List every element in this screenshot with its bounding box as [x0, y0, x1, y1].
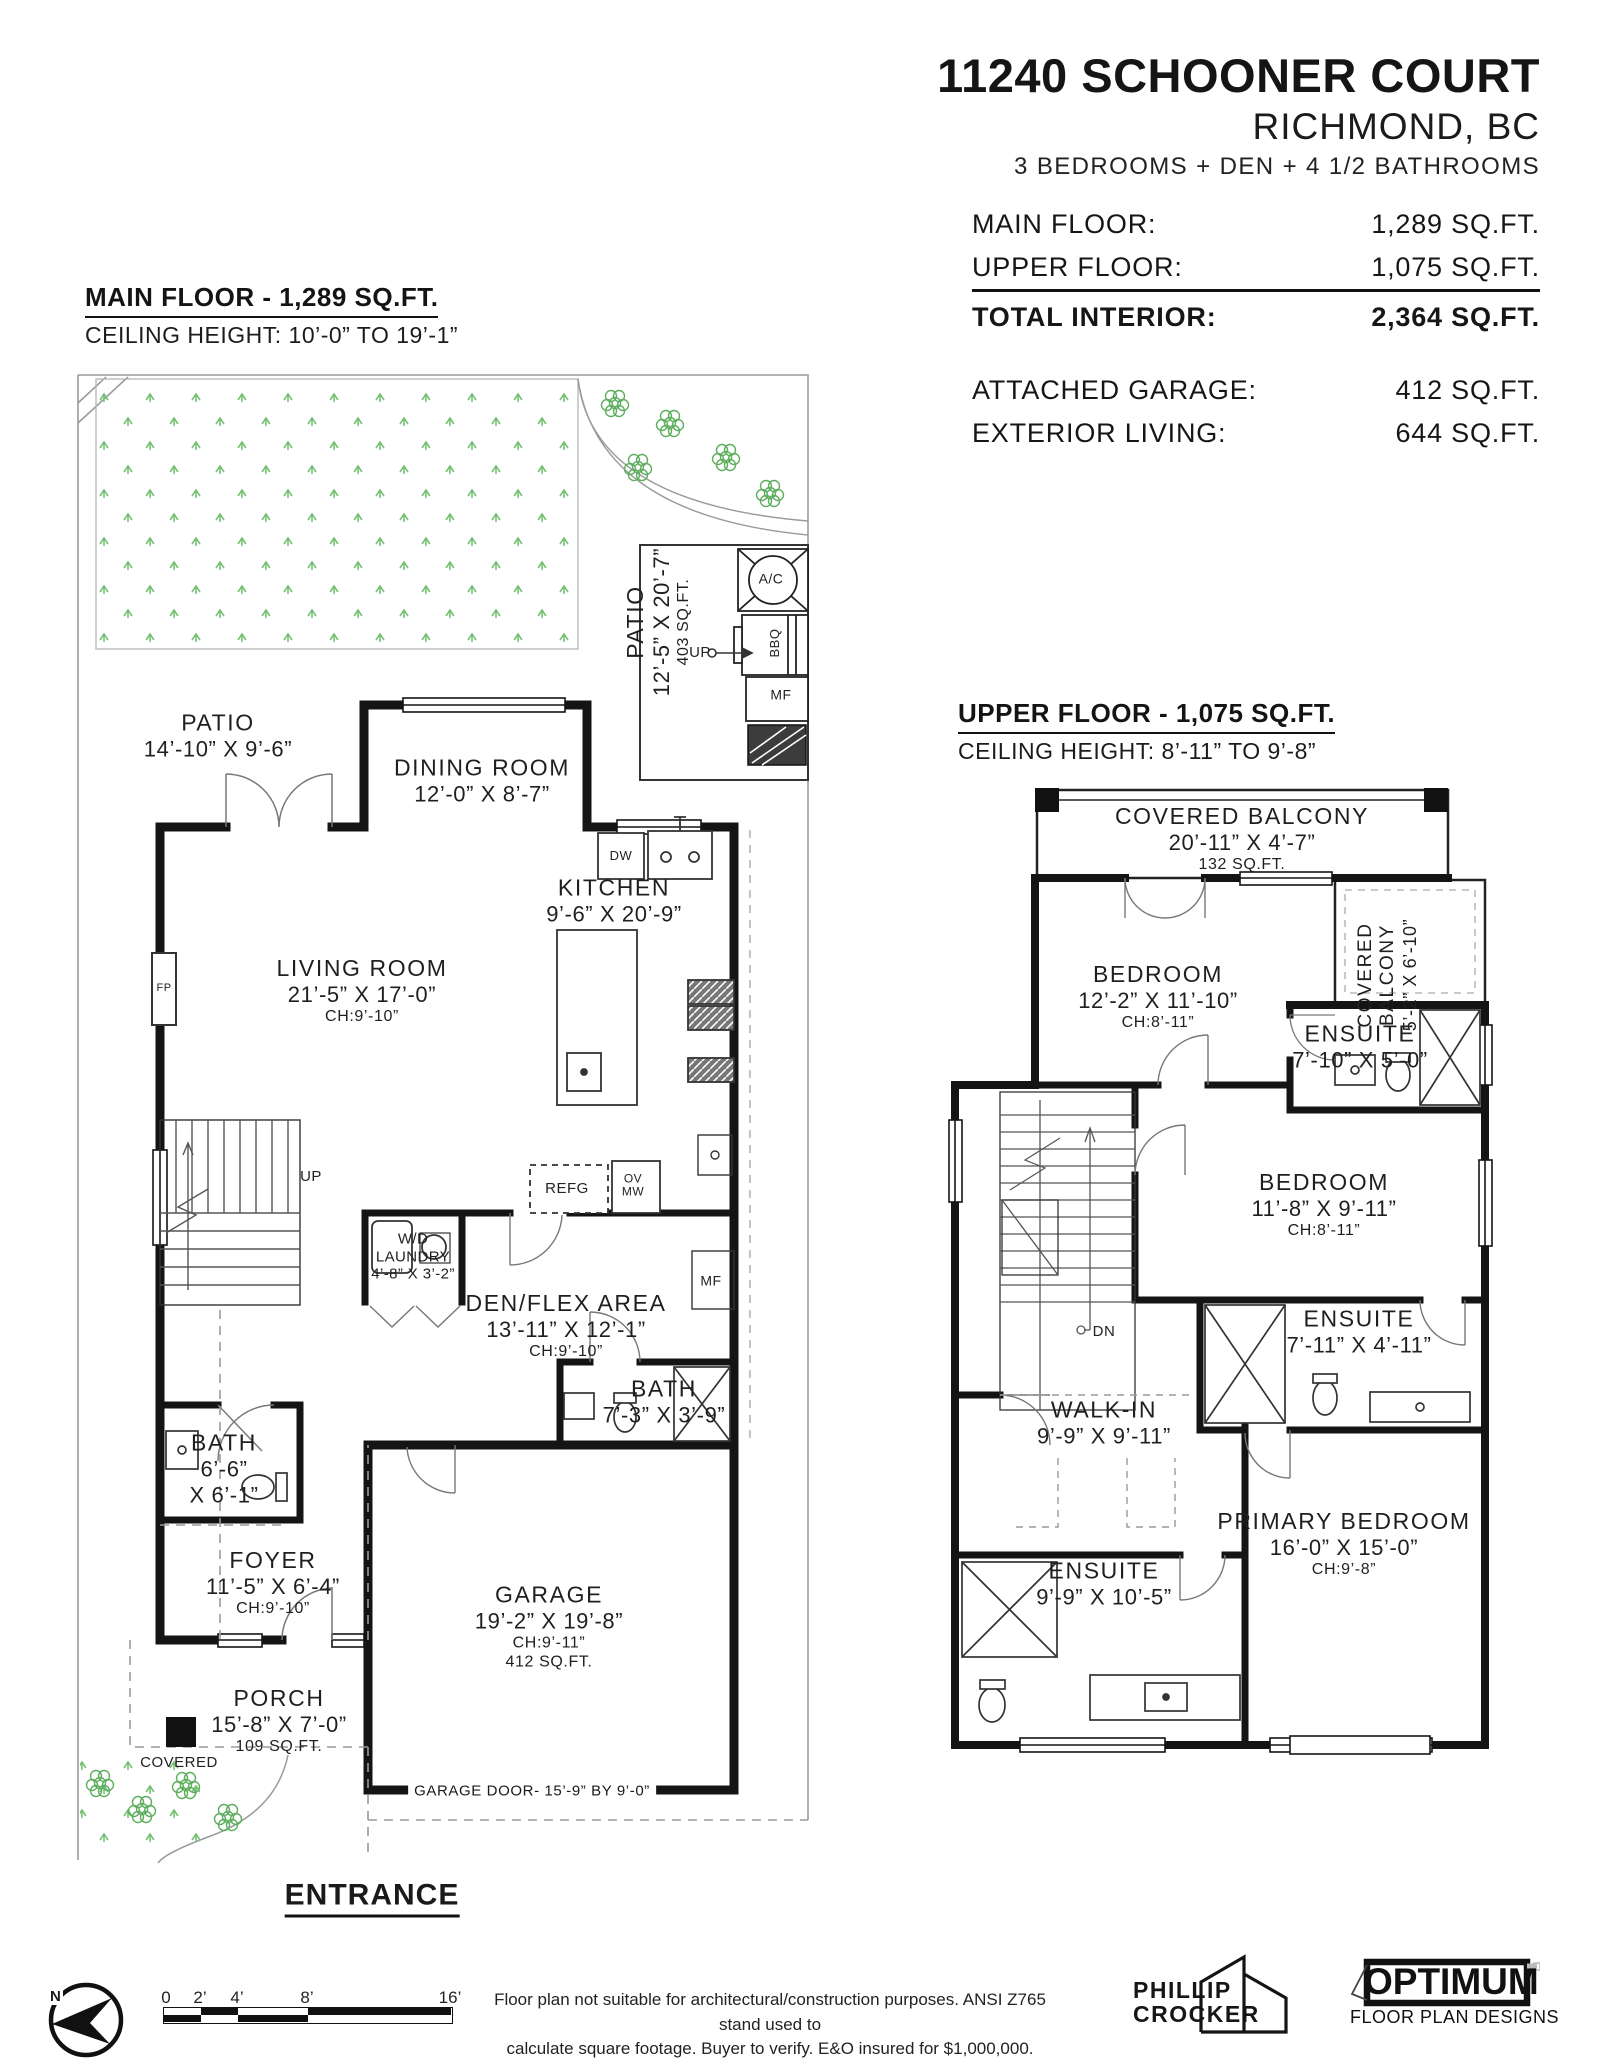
- area-value: 1,075 SQ.FT.: [1371, 252, 1540, 283]
- main-floor-title: MAIN FLOOR - 1,289 SQ.FT.: [85, 282, 438, 318]
- up-stairs-label: UP: [300, 1169, 322, 1185]
- disclaimer-text: Floor plan not suitable for architectura…: [480, 1988, 1060, 2062]
- room-label-bath-den: BATH 7’-3” X 3’-9”: [603, 1375, 726, 1428]
- scale-tick: 16’: [439, 1988, 462, 2008]
- area-label: TOTAL INTERIOR:: [972, 302, 1217, 333]
- refg-label: REFG: [545, 1181, 589, 1197]
- porch-post: [166, 1717, 196, 1747]
- room-label-porch: PORCH 15’-8” X 7’-0” 109 SQ.FT.: [211, 1685, 347, 1757]
- scale-bar: 0 2’ 4’ 8’ 16’: [163, 1988, 453, 2028]
- room-label-primary: PRIMARY BEDROOM 16’-0” X 15’-0” CH:9’-8”: [1217, 1508, 1470, 1580]
- entrance-label: ENTRANCE: [285, 1879, 460, 1918]
- scale-tick: 8’: [300, 1988, 313, 2008]
- main-floor-plan-drawing: [70, 365, 815, 1875]
- wall-oven: [688, 980, 734, 1004]
- room-label-patio-right: PATIO 12’-5” X 20’-7” 403 SQ.FT.: [622, 548, 694, 696]
- balcony-doors: [1125, 878, 1205, 918]
- dn-label: DN: [1093, 1324, 1116, 1340]
- garage-door-label: GARAGE DOOR- 15’-9” BY 9’-0”: [408, 1783, 656, 1800]
- room-label-living: LIVING ROOM 21’-5” X 17’-0” CH:9’-10”: [277, 955, 448, 1027]
- mf-den-label: MF: [700, 1274, 721, 1289]
- room-label-laundry: W/D LAUNDRY 4’-8” X 3’-2”: [371, 1230, 455, 1283]
- staircase: [160, 1120, 300, 1305]
- room-label-balcony-top: COVERED BALCONY 20’-11” X 4’-7” 132 SQ.F…: [1115, 803, 1369, 875]
- area-label: MAIN FLOOR:: [972, 209, 1156, 240]
- room-label-ensuite2: ENSUITE 7’-11” X 4’-11”: [1286, 1305, 1431, 1358]
- kitchen-island: [557, 930, 637, 1105]
- bay-window: [1290, 1736, 1430, 1754]
- garden-bed: [96, 379, 578, 649]
- french-doors: [226, 774, 332, 827]
- toilet: [1313, 1381, 1337, 1415]
- area-label: UPPER FLOOR:: [972, 252, 1183, 283]
- room-label-ensuite3: ENSUITE 9’-9” X 10’-5”: [1036, 1557, 1172, 1610]
- optimum-subtitle: FLOOR PLAN DESIGNS: [1350, 2007, 1540, 2028]
- area-value: 2,364 SQ.FT.: [1371, 302, 1540, 333]
- area-value: 1,289 SQ.FT.: [1371, 209, 1540, 240]
- dishwasher-label: DW: [610, 849, 633, 863]
- chimney-icon: [748, 725, 806, 765]
- room-label-dining: DINING ROOM 12’-0” X 8’-7”: [394, 754, 570, 807]
- scale-tick: 4’: [230, 1988, 243, 2008]
- table-row: EXTERIOR LIVING: 644 SQ.FT.: [972, 412, 1540, 455]
- north-letter: N: [48, 1988, 63, 2005]
- oven-mw-label: OV MW: [622, 1172, 644, 1197]
- spacer: [972, 339, 1540, 369]
- room-label-bedroom2: BEDROOM 11’-8” X 9’-11” CH:8’-11”: [1251, 1169, 1396, 1241]
- shrubs-icon: [602, 391, 784, 507]
- mf-label: MF: [770, 688, 791, 703]
- main-floor-ceiling: CEILING HEIGHT: 10’-0” TO 19’-1”: [85, 322, 458, 349]
- page-title: 11240 SCHOONER COURT: [937, 48, 1540, 103]
- phillip-crocker-logo: [1198, 1954, 1290, 2034]
- sink: [564, 1393, 594, 1419]
- floor-plan-sheet: 11240 SCHOONER COURT RICHMOND, BC 3 BEDR…: [0, 0, 1600, 2071]
- vanity: [1370, 1392, 1470, 1422]
- kitchen-sink: [648, 831, 712, 879]
- area-label: EXTERIOR LIVING:: [972, 418, 1226, 449]
- table-row: TOTAL INTERIOR: 2,364 SQ.FT.: [972, 292, 1540, 339]
- room-label-balcony-side: COVERED BALCONY 5’-2” X 6’-10”: [1355, 919, 1421, 1031]
- fireplace-label: FP: [156, 983, 171, 995]
- room-label-bedroom1: BEDROOM 12’-2” X 11’-10” CH:8’-11”: [1078, 961, 1238, 1033]
- upper-floor-title: UPPER FLOOR - 1,075 SQ.FT.: [958, 698, 1335, 734]
- optimum-logo: OPTIMUM FLOOR PLAN DESIGNS: [1350, 1958, 1540, 2030]
- room-label-foyer: FOYER 11’-5” X 6’-4” CH:9’-10”: [206, 1547, 340, 1619]
- room-label-bath-main: BATH 6’-6” X 6’-1”: [190, 1429, 259, 1508]
- upper-floor-ceiling: CEILING HEIGHT: 8’-11” TO 9’-8”: [958, 738, 1335, 765]
- area-summary-table: MAIN FLOOR: 1,289 SQ.FT. UPPER FLOOR: 1,…: [972, 203, 1540, 455]
- ac-label: A/C: [759, 572, 784, 587]
- up-arrow-icon: [708, 648, 752, 658]
- garage-entry-door: [407, 1445, 455, 1493]
- area-label: ATTACHED GARAGE:: [972, 375, 1257, 406]
- scale-tick: 0: [161, 1988, 170, 2008]
- table-row: UPPER FLOOR: 1,075 SQ.FT.: [972, 246, 1540, 292]
- optimum-wordmark: OPTIMUM: [1364, 1961, 1532, 2003]
- up-label: UP: [689, 645, 711, 661]
- upper-floor-header: UPPER FLOOR - 1,075 SQ.FT. CEILING HEIGH…: [958, 698, 1335, 765]
- room-label-ensuite1: ENSUITE 7’-10” X 5’-0”: [1292, 1020, 1428, 1073]
- room-label-den: DEN/FLEX AREA 13’-11” X 12’-1” CH:9’-10”: [465, 1290, 666, 1362]
- city-subtitle: RICHMOND, BC: [1253, 106, 1540, 148]
- upper-floor-plan-drawing: [940, 770, 1510, 1760]
- toilet: [979, 1688, 1005, 1722]
- area-value: 644 SQ.FT.: [1395, 418, 1540, 449]
- table-row: MAIN FLOOR: 1,289 SQ.FT.: [972, 203, 1540, 246]
- area-value: 412 SQ.FT.: [1395, 375, 1540, 406]
- room-label-garage: GARAGE 19’-2” X 19’-8” CH:9’-11” 412 SQ.…: [475, 1582, 623, 1673]
- room-label-patio: PATIO 14’-10” X 9’-6”: [144, 709, 292, 762]
- room-label-walkin: WALK-IN 9’-9” X 9’-11”: [1037, 1396, 1171, 1449]
- front-garden: [80, 1755, 288, 1863]
- upper-staircase: [1000, 1092, 1135, 1410]
- covered-label: COVERED: [140, 1755, 218, 1771]
- scale-bar-segments: [163, 2007, 453, 2024]
- bbq-label: BBQ: [768, 629, 782, 658]
- table-row: ATTACHED GARAGE: 412 SQ.FT.: [972, 369, 1540, 412]
- room-label-kitchen: KITCHEN 9’-6” X 20’-9”: [546, 874, 682, 927]
- bed-bath-summary: 3 BEDROOMS + DEN + 4 1/2 BATHROOMS: [1014, 153, 1540, 181]
- main-floor-header: MAIN FLOOR - 1,289 SQ.FT. CEILING HEIGHT…: [85, 282, 458, 349]
- scale-tick: 2’: [193, 1988, 206, 2008]
